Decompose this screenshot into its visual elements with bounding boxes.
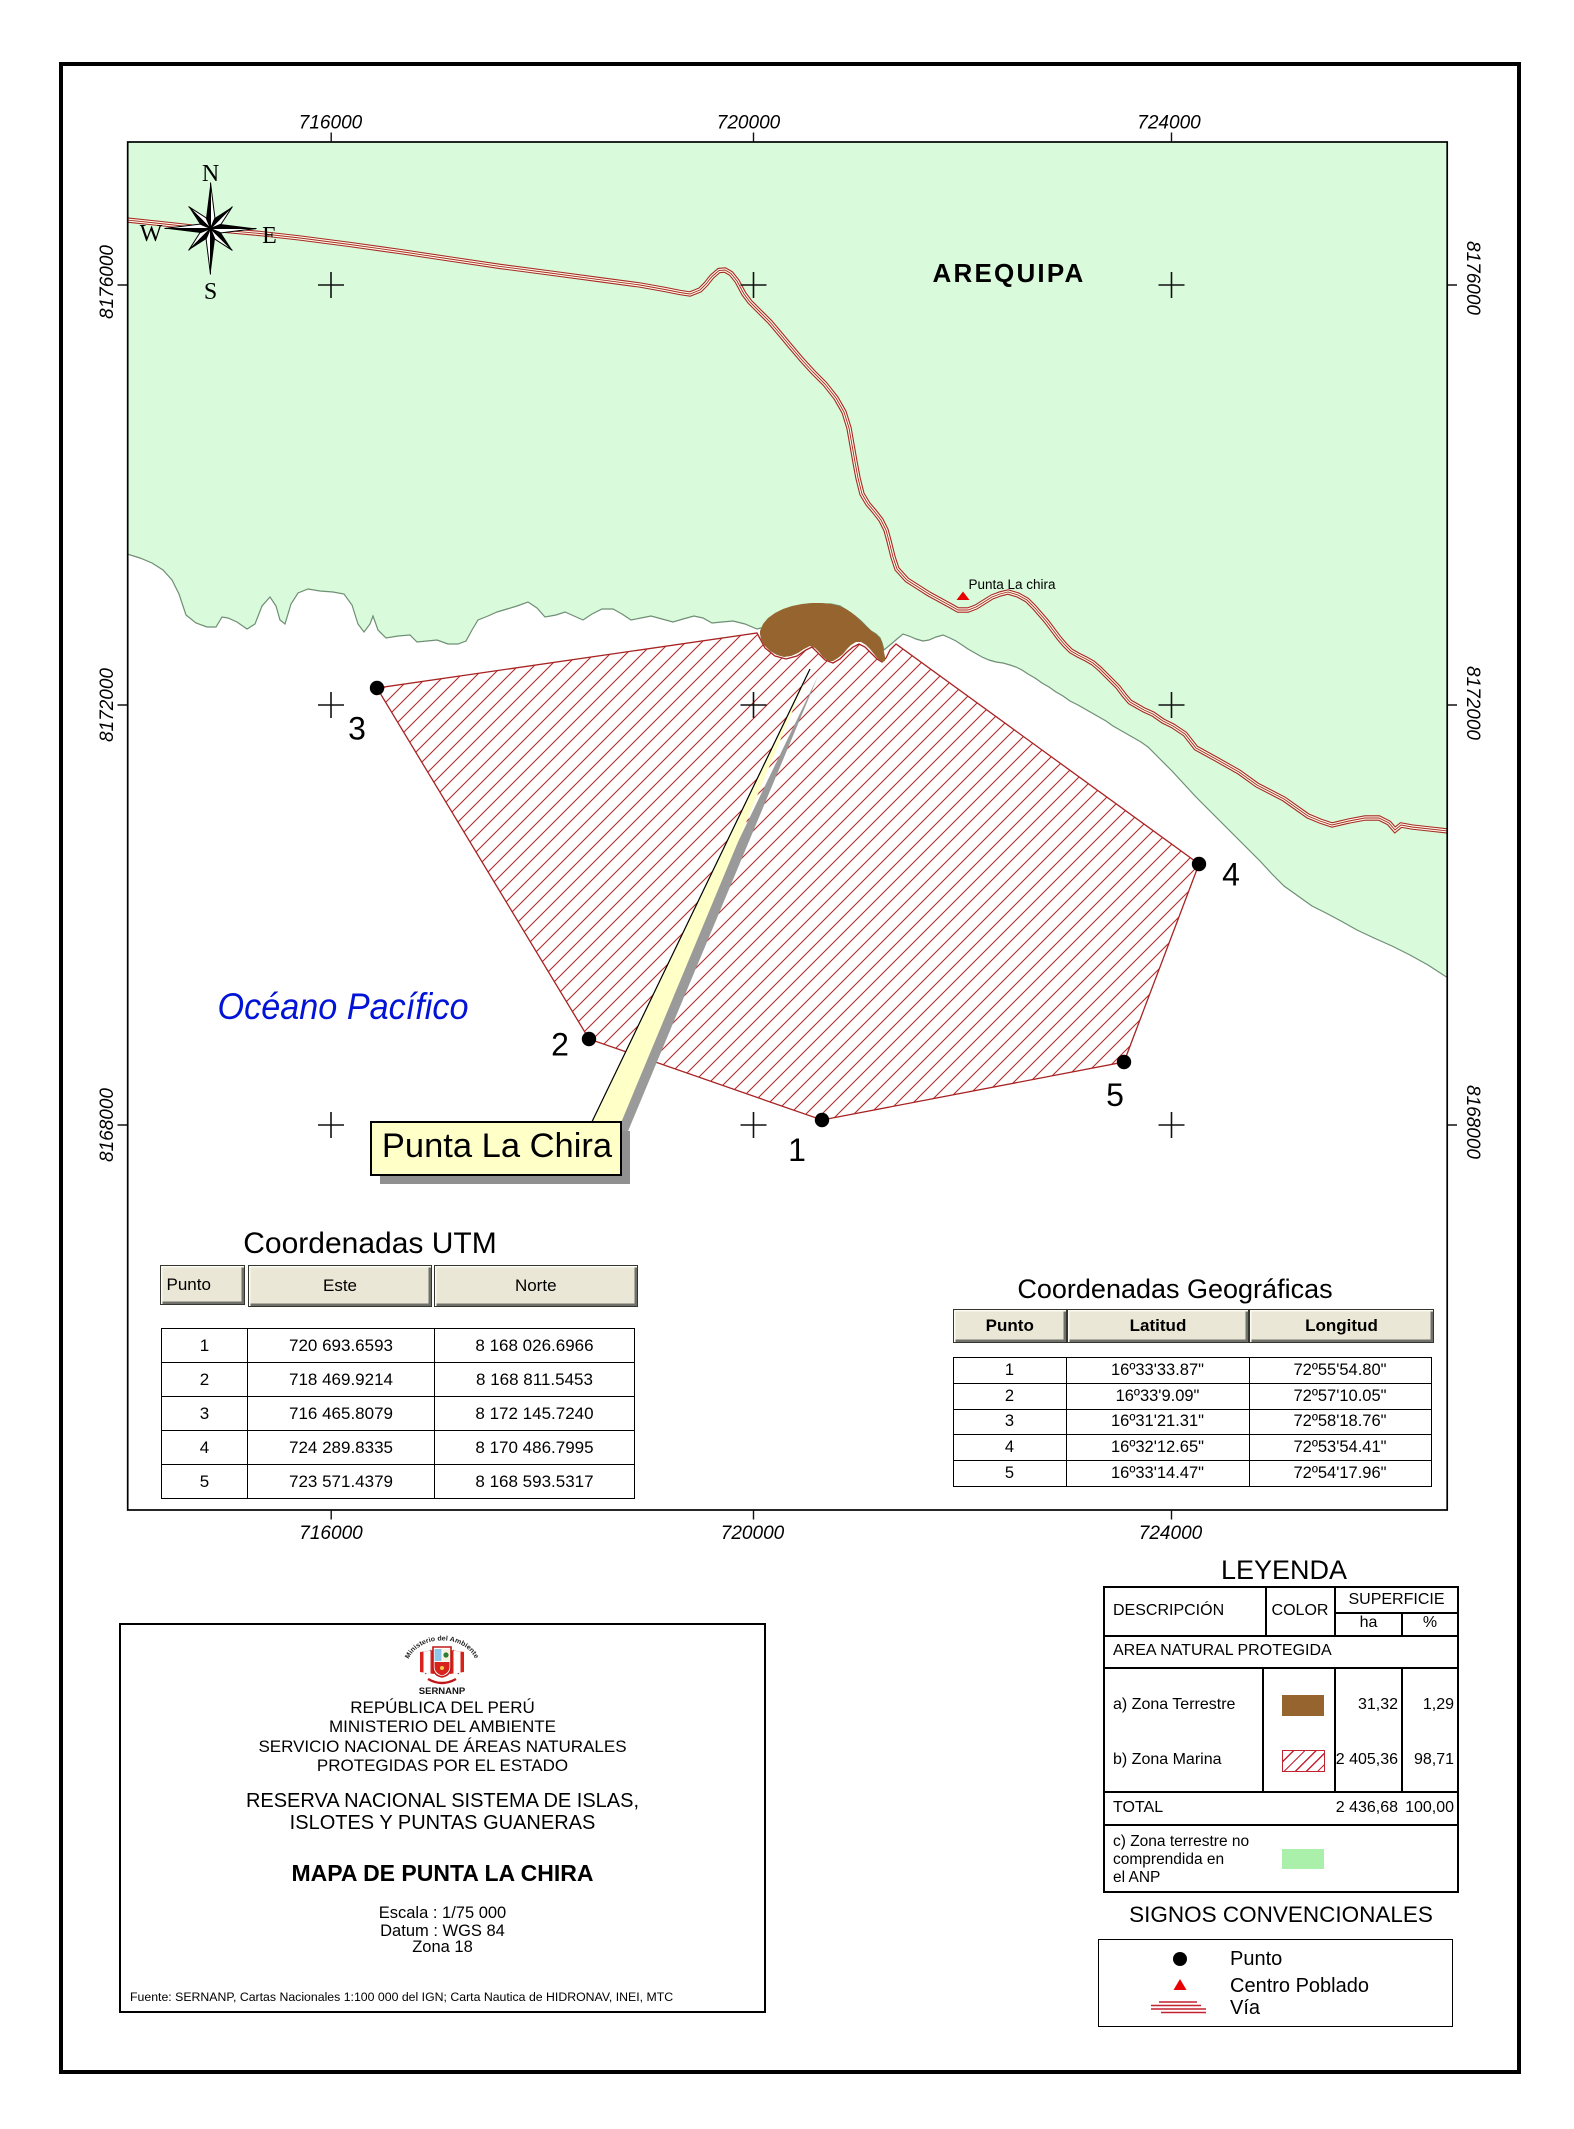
svg-text:8172000: 8172000: [1462, 666, 1483, 740]
svg-text:N: N: [202, 161, 219, 187]
svg-text:1: 1: [788, 1132, 806, 1168]
svg-text:8176000: 8176000: [97, 245, 118, 319]
svg-text:716000: 716000: [299, 113, 363, 134]
svg-text:E: E: [262, 223, 277, 249]
svg-text:Punta La chira: Punta La chira: [969, 577, 1057, 592]
svg-text:Punta La Chira: Punta La Chira: [382, 1127, 613, 1165]
svg-text:3: 3: [348, 711, 366, 747]
svg-text:SERNANP: SERNANP: [419, 1686, 466, 1697]
svg-text:2: 2: [551, 1027, 569, 1063]
svg-text:W: W: [140, 221, 163, 247]
svg-text:724000: 724000: [1137, 113, 1201, 134]
svg-text:5: 5: [1106, 1077, 1124, 1113]
svg-text:716000: 716000: [299, 1523, 363, 1544]
svg-text:S: S: [204, 279, 217, 305]
svg-text:8168000: 8168000: [1462, 1085, 1483, 1159]
svg-text:8168000: 8168000: [97, 1088, 118, 1162]
svg-text:720000: 720000: [721, 1523, 785, 1544]
svg-text:8172000: 8172000: [97, 668, 118, 742]
svg-text:724000: 724000: [1139, 1523, 1203, 1544]
svg-text:AREQUIPA: AREQUIPA: [933, 258, 1086, 288]
svg-text:4: 4: [1222, 857, 1240, 893]
svg-text:8176000: 8176000: [1462, 241, 1483, 315]
svg-text:Océano Pacífico: Océano Pacífico: [218, 986, 469, 1027]
svg-text:720000: 720000: [717, 113, 781, 134]
